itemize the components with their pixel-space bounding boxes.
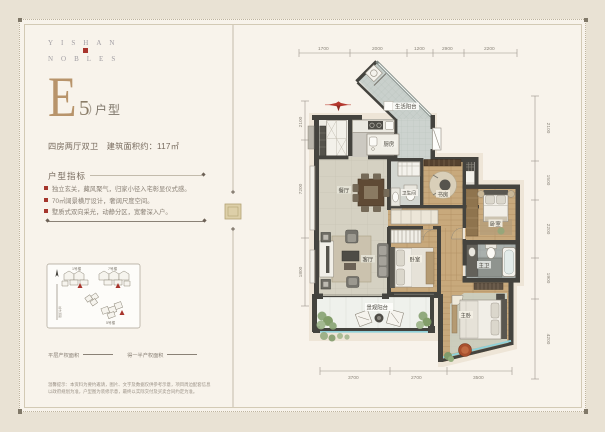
svg-text:2100: 2100: [545, 123, 551, 134]
svg-text:主卫: 主卫: [479, 262, 490, 270]
svg-text:2000: 2000: [372, 46, 383, 52]
svg-text:卧室: 卧室: [410, 256, 421, 264]
svg-text:1900: 1900: [545, 273, 551, 284]
svg-text:景观阳台: 景观阳台: [367, 304, 389, 312]
svg-text:餐厅: 餐厅: [339, 187, 350, 195]
svg-text:书房: 书房: [438, 191, 449, 199]
svg-text:1500: 1500: [545, 175, 551, 186]
svg-text:1800: 1800: [298, 266, 304, 277]
svg-text:3500: 3500: [473, 375, 484, 381]
svg-text:2200: 2200: [545, 224, 551, 235]
svg-text:生活阳台: 生活阳台: [395, 103, 417, 111]
svg-text:3700: 3700: [348, 375, 359, 381]
svg-text:7200: 7200: [298, 183, 304, 194]
svg-text:2200: 2200: [484, 46, 495, 52]
svg-text:卫生间: 卫生间: [402, 190, 416, 197]
svg-text:主卧: 主卧: [461, 312, 472, 320]
svg-text:2900: 2900: [442, 46, 453, 52]
svg-text:2700: 2700: [411, 375, 422, 381]
svg-text:2100: 2100: [298, 116, 304, 127]
svg-text:4200: 4200: [545, 334, 551, 345]
svg-text:1700: 1700: [318, 46, 329, 52]
svg-text:客厅: 客厅: [363, 256, 374, 264]
svg-text:卧室: 卧室: [490, 220, 501, 228]
svg-text:厨房: 厨房: [384, 140, 395, 148]
svg-text:1200: 1200: [414, 46, 425, 52]
